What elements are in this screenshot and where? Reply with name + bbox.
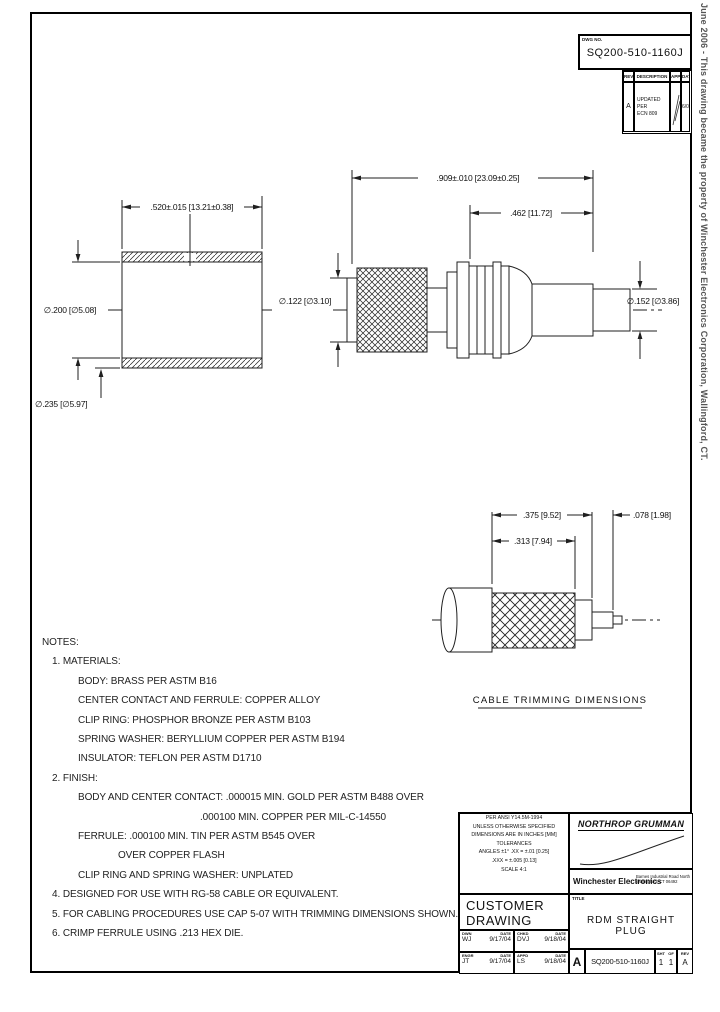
drawing-type-cell: CUSTOMER DRAWING — [459, 894, 569, 930]
rev-cell: REV A — [677, 949, 693, 974]
drawing-number-box: DWG NO. SQ200-510-1160J — [578, 34, 692, 70]
tolerance-line: SCALE 4:1 — [460, 866, 568, 875]
cable-dim-078: .078 [1.98] — [633, 510, 671, 520]
cable-dim-375: .375 [9.52] — [523, 510, 561, 520]
date-header: DATE — [681, 71, 690, 82]
title-cell: TITLE RDM STRAIGHT PLUG — [569, 894, 693, 949]
dwg-no-cell: SQ200-510-1160J — [585, 949, 655, 974]
rev-label: REV — [678, 951, 692, 956]
note-line: 4. DESIGNED FOR USE WITH RG-58 CABLE OR … — [42, 885, 458, 904]
tolerance-line: PER ANSI Y14.5M-1994 — [460, 814, 568, 823]
signoff-date: 9/17/04 — [489, 936, 511, 944]
note-line: FERRULE: .000100 MIN. TIN PER ASTM B545 … — [42, 827, 458, 846]
description-header: DESCRIPTION — [634, 71, 670, 82]
sheet-number: 1 — [656, 958, 666, 967]
note-line: SPRING WASHER: BERYLLIUM COPPER PER ASTM… — [42, 730, 458, 749]
rev-header: REV — [623, 71, 634, 82]
signoff-checked: CHKD DATE DVJ 9/18/04 — [514, 930, 569, 952]
tolerance-line: .XXX = ±.005 [0.13] — [460, 857, 568, 866]
tolerance-line: DIMENSIONS ARE IN INCHES [MM] — [460, 831, 568, 840]
sheet-label: SHT — [656, 951, 666, 956]
note-line: 5. FOR CABLING PROCEDURES USE CAP 5-07 W… — [42, 905, 458, 924]
cable-trimming-view: .375 [9.52] .078 [1.98] .313 [7.94] CABL… — [432, 510, 671, 708]
signoff-date: 9/18/04 — [544, 936, 566, 944]
size-cell: A — [569, 949, 585, 974]
northrop-grumman-logo: NORTHROP GRUMMAN — [570, 819, 692, 829]
note-line: BODY: BRASS PER ASTM B16 — [42, 672, 458, 691]
dwg-no-value: SQ200-510-1160J — [580, 47, 690, 59]
note-line: 2. FINISH: — [42, 769, 458, 788]
drawing-type-line1: CUSTOMER — [466, 898, 544, 913]
notes-list: 1. MATERIALS:BODY: BRASS PER ASTM B16CEN… — [42, 652, 458, 943]
note-line: CLIP RING AND SPRING WASHER: UNPLATED — [42, 866, 458, 885]
rev-description-line2: ECN 809 — [637, 111, 669, 118]
connector-body-dim: .462 [11.72] — [510, 208, 552, 218]
sheet-cell: SHT 1 OF 1 — [655, 949, 677, 974]
signoff-approved: APPD DATE LS 9/18/04 — [514, 952, 569, 974]
revision-table: REV DESCRIPTION APP DATE A UPDATED PER E… — [622, 70, 692, 134]
rev-description-line1: UPDATED PER — [637, 97, 669, 111]
tolerance-line: UNLESS OTHERWISE SPECIFIED — [460, 823, 568, 832]
note-line: 6. CRIMP FERRULE USING .213 HEX DIE. — [42, 924, 458, 943]
cable-dim-313: .313 [7.94] — [514, 536, 552, 546]
rev-description: UPDATED PER ECN 809 — [634, 82, 670, 132]
signoff-date: 9/17/04 — [489, 958, 511, 966]
ferrule-bore-dim: ∅.200 [∅5.08] — [44, 305, 96, 315]
notes-heading: NOTES: — [42, 633, 458, 652]
connector-overall-dim: .909±.010 [23.09±0.25] — [437, 173, 520, 183]
note-line: OVER COPPER FLASH — [42, 846, 458, 865]
note-line: 1. MATERIALS: — [42, 652, 458, 671]
drawing-type-line2: DRAWING — [466, 913, 544, 928]
note-line: INSULATOR: TEFLON PER ASTM D1710 — [42, 749, 458, 768]
rev-date: 6/06 — [681, 82, 690, 132]
connector-left-dia-dim: ∅.122 [∅3.10] — [279, 296, 331, 306]
ferrule-od-dim: ∅.235 [∅5.97] — [35, 399, 87, 409]
company-logo-cell: NORTHROP GRUMMAN — [569, 813, 693, 869]
ferrule-length-dim: .520±.015 [13.21±0.38] — [151, 202, 234, 212]
address-line2: Wallingford, CT 06492 — [636, 879, 690, 884]
connector-view: .909±.010 [23.09±0.25] .462 [11.72] ∅.12… — [279, 170, 679, 367]
rev-value: A — [623, 82, 634, 132]
cable-trimming-caption: CABLE TRIMMING DIMENSIONS — [473, 695, 647, 706]
signature-scribble — [570, 832, 692, 868]
of-number: 1 — [666, 958, 676, 967]
rev-approval-cell — [670, 82, 681, 132]
app-header: APP — [670, 71, 681, 82]
of-label: OF — [666, 951, 676, 956]
signoff-drawn: DWN DATE WJ 9/17/04 — [459, 930, 514, 952]
company-address: Barnes Industrial Road North Wallingford… — [636, 874, 690, 884]
signoff-name: DVJ — [517, 936, 529, 944]
tolerance-line: ANGLES ±1° .XX = ±.01 [0.25] — [460, 848, 568, 857]
note-line: .000100 MIN. COPPER PER MIL-C-14550 — [42, 808, 458, 827]
signoff-date: 9/18/04 — [544, 958, 566, 966]
dwg-no-label: DWG NO. — [582, 37, 602, 42]
tolerance-note: PER ANSI Y14.5M-1994 UNLESS OTHERWISE SP… — [459, 813, 569, 894]
ownership-note: June 2006 - This drawing became the prop… — [699, 3, 709, 461]
title-block: PER ANSI Y14.5M-1994 UNLESS OTHERWISE SP… — [458, 812, 692, 973]
tolerance-line: TOLERANCES — [460, 840, 568, 849]
signoff-name: WJ — [462, 936, 471, 944]
connector-right-dia-dim: ∅.152 [∅3.86] — [627, 296, 679, 306]
ferrule-view: .520±.015 [13.21±0.38] ∅.200 [∅5.08] ∅.2… — [35, 196, 276, 409]
signature-scribble — [671, 83, 681, 132]
title-label: TITLE — [572, 896, 585, 901]
note-line: CLIP RING: PHOSPHOR BRONZE PER ASTM B103 — [42, 711, 458, 730]
signoff-engineer: ENGR DATE JT 9/17/04 — [459, 952, 514, 974]
division-cell: Winchester Electronics Barnes Industrial… — [569, 869, 693, 894]
notes-section: NOTES: 1. MATERIALS:BODY: BRASS PER ASTM… — [42, 633, 458, 944]
note-line: BODY AND CENTER CONTACT: .000015 MIN. GO… — [42, 788, 458, 807]
drawing-title: RDM STRAIGHT PLUG — [570, 915, 692, 937]
rev-value: A — [678, 958, 692, 967]
signoff-name: JT — [462, 958, 469, 966]
signoff-name: LS — [517, 958, 525, 966]
note-line: CENTER CONTACT AND FERRULE: COPPER ALLOY — [42, 691, 458, 710]
